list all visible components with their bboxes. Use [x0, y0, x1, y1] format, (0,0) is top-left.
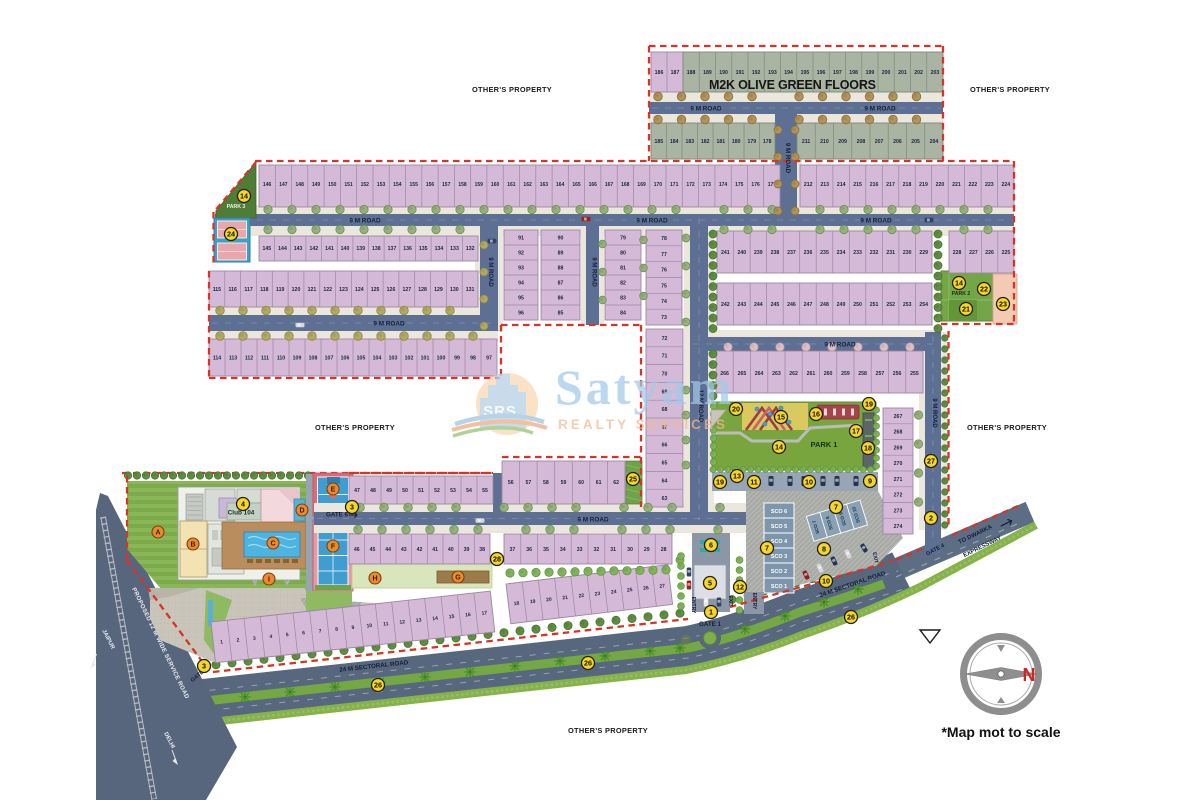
svg-text:47: 47 — [354, 488, 360, 494]
svg-text:28: 28 — [661, 547, 667, 553]
svg-text:206: 206 — [893, 139, 902, 145]
svg-text:40: 40 — [448, 547, 454, 553]
svg-text:OTHER'S PROPERTY: OTHER'S PROPERTY — [568, 726, 648, 735]
svg-text:205: 205 — [911, 139, 920, 145]
svg-text:154: 154 — [393, 182, 402, 188]
svg-text:28: 28 — [493, 555, 501, 564]
svg-text:243: 243 — [737, 302, 746, 308]
svg-text:170: 170 — [654, 182, 663, 188]
svg-text:211: 211 — [802, 139, 810, 145]
svg-text:237: 237 — [787, 250, 796, 256]
svg-text:26: 26 — [847, 613, 855, 622]
svg-text:254: 254 — [919, 302, 928, 308]
svg-text:166: 166 — [589, 182, 598, 188]
svg-text:265: 265 — [738, 371, 747, 377]
svg-text:238: 238 — [771, 250, 780, 256]
svg-text:122: 122 — [323, 287, 332, 293]
svg-text:256: 256 — [893, 371, 902, 377]
svg-text:106: 106 — [341, 356, 350, 362]
svg-text:131: 131 — [466, 287, 475, 293]
svg-text:165: 165 — [572, 182, 581, 188]
svg-text:14: 14 — [955, 279, 963, 288]
svg-text:10: 10 — [366, 623, 372, 630]
svg-text:38: 38 — [479, 547, 485, 553]
svg-text:219: 219 — [919, 182, 928, 188]
svg-text:247: 247 — [804, 302, 813, 308]
svg-text:63: 63 — [662, 496, 668, 502]
svg-text:90: 90 — [558, 236, 564, 242]
svg-text:198: 198 — [849, 70, 858, 76]
svg-text:9 M ROAD: 9 M ROAD — [577, 517, 609, 524]
svg-text:271: 271 — [894, 477, 903, 483]
svg-text:9 M ROAD: 9 M ROAD — [784, 143, 791, 174]
svg-text:192: 192 — [752, 70, 761, 76]
svg-text:10: 10 — [805, 478, 813, 487]
svg-text:173: 173 — [703, 182, 712, 188]
svg-text:C: C — [270, 541, 275, 548]
svg-text:109: 109 — [293, 356, 302, 362]
svg-text:201: 201 — [898, 70, 907, 76]
svg-text:11: 11 — [750, 478, 758, 487]
svg-text:32: 32 — [594, 547, 600, 553]
svg-text:112: 112 — [245, 356, 253, 362]
svg-text:114: 114 — [213, 356, 221, 362]
svg-text:51: 51 — [418, 488, 424, 494]
svg-text:SCO 6: SCO 6 — [771, 509, 787, 515]
svg-text:273: 273 — [894, 508, 903, 514]
svg-text:61: 61 — [596, 480, 602, 486]
svg-text:23: 23 — [594, 591, 600, 598]
svg-text:52: 52 — [434, 488, 440, 494]
svg-text:124: 124 — [355, 287, 364, 293]
svg-text:9 M ROAD: 9 M ROAD — [864, 106, 896, 113]
svg-text:19: 19 — [716, 478, 724, 487]
svg-text:D: D — [299, 508, 304, 515]
svg-text:9 M ROAD: 9 M ROAD — [931, 398, 937, 428]
svg-text:120: 120 — [292, 287, 301, 293]
svg-text:181: 181 — [716, 139, 725, 145]
svg-text:22: 22 — [578, 593, 584, 600]
svg-text:260: 260 — [824, 371, 833, 377]
svg-text:12: 12 — [736, 583, 744, 592]
svg-text:196: 196 — [817, 70, 826, 76]
svg-text:171: 171 — [670, 182, 679, 188]
svg-text:118: 118 — [260, 287, 268, 293]
svg-text:H: H — [372, 576, 377, 583]
svg-text:96: 96 — [518, 311, 524, 317]
svg-text:163: 163 — [540, 182, 549, 188]
svg-text:139: 139 — [356, 246, 365, 252]
svg-text:SCO 3: SCO 3 — [771, 554, 787, 560]
svg-text:18: 18 — [864, 444, 872, 453]
svg-text:168: 168 — [621, 182, 630, 188]
svg-text:24: 24 — [227, 230, 235, 239]
svg-text:213: 213 — [820, 182, 829, 188]
svg-text:ENTRY: ENTRY — [751, 593, 757, 610]
svg-text:140: 140 — [341, 246, 350, 252]
svg-text:147: 147 — [279, 182, 288, 188]
svg-text:3: 3 — [350, 503, 354, 512]
svg-text:75: 75 — [661, 283, 667, 289]
svg-text:144: 144 — [278, 246, 287, 252]
svg-text:100: 100 — [437, 356, 446, 362]
svg-text:156: 156 — [426, 182, 435, 188]
svg-text:8: 8 — [822, 545, 826, 554]
svg-text:9 M ROAD: 9 M ROAD — [824, 342, 856, 349]
svg-text:127: 127 — [402, 287, 411, 293]
svg-text:OTHER'S PROPERTY: OTHER'S PROPERTY — [970, 85, 1050, 94]
svg-text:50: 50 — [402, 488, 408, 494]
svg-text:21: 21 — [562, 595, 568, 602]
svg-text:87: 87 — [558, 281, 564, 287]
svg-text:REALTY SERVICES: REALTY SERVICES — [558, 417, 728, 432]
svg-text:157: 157 — [442, 182, 451, 188]
svg-text:98: 98 — [470, 356, 476, 362]
svg-text:234: 234 — [837, 250, 846, 256]
svg-text:236: 236 — [804, 250, 813, 256]
svg-text:143: 143 — [294, 246, 303, 252]
svg-text:OTHER'S PROPERTY: OTHER'S PROPERTY — [315, 423, 395, 432]
svg-text:158: 158 — [458, 182, 467, 188]
svg-text:197: 197 — [833, 70, 842, 76]
svg-text:220: 220 — [936, 182, 945, 188]
svg-text:207: 207 — [875, 139, 884, 145]
svg-text:N: N — [1023, 665, 1036, 685]
svg-text:7: 7 — [834, 503, 838, 512]
svg-text:153: 153 — [377, 182, 386, 188]
svg-text:55: 55 — [482, 488, 488, 494]
svg-text:248: 248 — [820, 302, 829, 308]
svg-text:125: 125 — [371, 287, 380, 293]
svg-text:208: 208 — [857, 139, 866, 145]
svg-text:9 M ROAD: 9 M ROAD — [860, 218, 892, 225]
svg-text:145: 145 — [262, 246, 271, 252]
svg-text:56: 56 — [508, 480, 514, 486]
svg-text:250: 250 — [853, 302, 862, 308]
svg-text:18: 18 — [513, 601, 519, 608]
svg-text:235: 235 — [820, 250, 829, 256]
svg-text:209: 209 — [838, 139, 847, 145]
svg-text:132: 132 — [466, 246, 475, 252]
svg-text:66: 66 — [662, 443, 668, 449]
svg-text:43: 43 — [401, 547, 407, 553]
svg-text:34: 34 — [560, 547, 566, 553]
svg-text:92: 92 — [518, 251, 524, 257]
svg-text:212: 212 — [804, 182, 813, 188]
svg-text:123: 123 — [339, 287, 348, 293]
svg-text:193: 193 — [768, 70, 777, 76]
svg-text:214: 214 — [837, 182, 846, 188]
svg-text:229: 229 — [919, 250, 928, 256]
svg-text:185: 185 — [654, 139, 663, 145]
svg-text:228: 228 — [953, 250, 962, 256]
svg-text:259: 259 — [841, 371, 850, 377]
svg-text:65: 65 — [662, 461, 668, 467]
svg-text:104: 104 — [373, 356, 382, 362]
svg-text:16: 16 — [812, 410, 820, 419]
svg-text:58: 58 — [543, 480, 549, 486]
svg-text:PARK 1: PARK 1 — [811, 440, 838, 449]
svg-text:95: 95 — [518, 296, 524, 302]
svg-text:26: 26 — [584, 659, 592, 668]
svg-text:274: 274 — [894, 524, 903, 530]
svg-text:*Map mot to scale: *Map mot to scale — [941, 724, 1060, 740]
svg-text:200: 200 — [882, 70, 891, 76]
svg-text:10: 10 — [822, 577, 830, 586]
svg-text:89: 89 — [558, 251, 564, 257]
svg-text:9 M ROAD: 9 M ROAD — [487, 257, 493, 287]
svg-text:7: 7 — [765, 544, 769, 553]
svg-text:199: 199 — [866, 70, 875, 76]
svg-text:44: 44 — [385, 547, 391, 553]
svg-text:13: 13 — [416, 617, 422, 624]
svg-text:252: 252 — [886, 302, 895, 308]
svg-text:172: 172 — [686, 182, 695, 188]
svg-text:14: 14 — [775, 443, 783, 452]
svg-text:169: 169 — [637, 182, 646, 188]
svg-text:99: 99 — [454, 356, 460, 362]
svg-text:224: 224 — [1001, 182, 1010, 188]
svg-text:13: 13 — [733, 472, 741, 481]
svg-text:20: 20 — [546, 597, 552, 604]
svg-text:249: 249 — [837, 302, 846, 308]
svg-text:2: 2 — [929, 514, 933, 523]
svg-text:183: 183 — [685, 139, 694, 145]
svg-text:182: 182 — [701, 139, 710, 145]
svg-text:OTHER'S PROPERTY: OTHER'S PROPERTY — [472, 85, 552, 94]
svg-text:11: 11 — [383, 621, 389, 628]
svg-text:102: 102 — [405, 356, 414, 362]
svg-text:138: 138 — [372, 246, 381, 252]
svg-text:105: 105 — [357, 356, 366, 362]
svg-text:111: 111 — [261, 356, 269, 362]
svg-text:17: 17 — [481, 610, 487, 617]
svg-text:29: 29 — [644, 547, 650, 553]
svg-text:241: 241 — [721, 250, 730, 256]
svg-text:77: 77 — [661, 252, 667, 258]
svg-text:270: 270 — [894, 461, 903, 467]
svg-text:16: 16 — [465, 612, 471, 619]
svg-text:22: 22 — [980, 285, 988, 294]
svg-text:129: 129 — [434, 287, 443, 293]
svg-text:244: 244 — [754, 302, 763, 308]
svg-text:119: 119 — [276, 287, 284, 293]
svg-text:103: 103 — [389, 356, 398, 362]
svg-text:Club 104: Club 104 — [228, 510, 255, 517]
svg-text:9 M ROAD: 9 M ROAD — [373, 321, 405, 328]
svg-text:245: 245 — [771, 302, 780, 308]
svg-text:184: 184 — [670, 139, 679, 145]
svg-text:3: 3 — [202, 662, 206, 671]
svg-text:110: 110 — [277, 356, 285, 362]
svg-text:101: 101 — [421, 356, 430, 362]
svg-text:SCO 2: SCO 2 — [771, 569, 787, 575]
svg-text:26: 26 — [374, 681, 382, 690]
svg-text:187: 187 — [671, 70, 680, 76]
svg-text:218: 218 — [903, 182, 912, 188]
svg-text:OTHER'S PROPERTY: OTHER'S PROPERTY — [967, 423, 1047, 432]
svg-text:84: 84 — [620, 311, 626, 317]
svg-text:161: 161 — [507, 182, 516, 188]
svg-text:4: 4 — [241, 500, 245, 509]
svg-text:62: 62 — [613, 480, 619, 486]
svg-text:Satyam: Satyam — [555, 359, 734, 415]
svg-text:272: 272 — [894, 493, 903, 499]
svg-text:54: 54 — [466, 488, 472, 494]
svg-text:227: 227 — [969, 250, 978, 256]
svg-text:221: 221 — [952, 182, 961, 188]
svg-text:174: 174 — [719, 182, 728, 188]
svg-text:GATE 6: GATE 6 — [326, 512, 348, 519]
svg-text:217: 217 — [886, 182, 895, 188]
svg-text:194: 194 — [784, 70, 793, 76]
svg-text:189: 189 — [703, 70, 712, 76]
svg-text:80: 80 — [620, 251, 626, 257]
svg-text:155: 155 — [410, 182, 419, 188]
svg-text:97: 97 — [486, 356, 492, 362]
svg-text:159: 159 — [475, 182, 484, 188]
svg-text:223: 223 — [985, 182, 994, 188]
svg-text:190: 190 — [719, 70, 728, 76]
svg-text:53: 53 — [450, 488, 456, 494]
svg-text:222: 222 — [968, 182, 977, 188]
svg-text:9 M ROAD: 9 M ROAD — [636, 218, 668, 225]
svg-text:78: 78 — [661, 236, 667, 242]
svg-text:19: 19 — [530, 599, 536, 606]
svg-text:37: 37 — [510, 547, 516, 553]
svg-text:264: 264 — [755, 371, 764, 377]
svg-text:25: 25 — [629, 475, 637, 484]
svg-text:SCO 1: SCO 1 — [771, 584, 787, 590]
svg-text:36: 36 — [526, 547, 532, 553]
svg-text:F: F — [331, 544, 336, 551]
svg-text:117: 117 — [244, 287, 252, 293]
svg-text:B: B — [190, 542, 195, 549]
svg-text:59: 59 — [561, 480, 567, 486]
svg-text:126: 126 — [387, 287, 396, 293]
svg-text:108: 108 — [309, 356, 318, 362]
svg-text:74: 74 — [661, 299, 667, 305]
svg-text:164: 164 — [556, 182, 565, 188]
svg-text:178: 178 — [763, 139, 772, 145]
svg-text:116: 116 — [229, 287, 237, 293]
svg-text:113: 113 — [229, 356, 237, 362]
svg-text:202: 202 — [914, 70, 923, 76]
svg-text:81: 81 — [620, 266, 626, 272]
svg-text:107: 107 — [325, 356, 334, 362]
svg-text:180: 180 — [732, 139, 741, 145]
svg-text:160: 160 — [491, 182, 500, 188]
svg-text:188: 188 — [687, 70, 696, 76]
svg-text:253: 253 — [903, 302, 912, 308]
svg-text:94: 94 — [518, 281, 524, 287]
svg-text:268: 268 — [894, 430, 903, 436]
svg-text:EXIT: EXIT — [727, 595, 733, 606]
svg-text:48: 48 — [370, 488, 376, 494]
svg-text:251: 251 — [870, 302, 879, 308]
svg-text:82: 82 — [620, 281, 626, 287]
svg-text:SCO 5: SCO 5 — [771, 524, 787, 530]
svg-text:162: 162 — [523, 182, 532, 188]
svg-text:91: 91 — [518, 236, 524, 242]
svg-text:225: 225 — [1002, 250, 1011, 256]
svg-text:261: 261 — [807, 371, 816, 377]
svg-text:83: 83 — [620, 296, 626, 302]
svg-text:186: 186 — [655, 70, 664, 76]
svg-text:115: 115 — [213, 287, 221, 293]
svg-text:21: 21 — [962, 305, 970, 314]
svg-text:167: 167 — [605, 182, 614, 188]
svg-text:E: E — [331, 487, 336, 494]
svg-text:226: 226 — [985, 250, 994, 256]
svg-text:24: 24 — [611, 589, 617, 596]
svg-text:135: 135 — [419, 246, 428, 252]
svg-text:133: 133 — [450, 246, 459, 252]
svg-text:141: 141 — [325, 246, 334, 252]
svg-text:263: 263 — [772, 371, 781, 377]
svg-text:6: 6 — [709, 541, 713, 550]
svg-text:146: 146 — [263, 182, 272, 188]
svg-text:76: 76 — [661, 268, 667, 274]
svg-text:232: 232 — [870, 250, 879, 256]
svg-text:64: 64 — [662, 478, 668, 484]
svg-text:9 M ROAD: 9 M ROAD — [690, 106, 722, 113]
svg-text:79: 79 — [620, 236, 626, 242]
svg-text:14: 14 — [240, 192, 248, 201]
svg-text:SCO 4: SCO 4 — [771, 539, 787, 545]
svg-text:176: 176 — [751, 182, 760, 188]
svg-text:15: 15 — [777, 413, 785, 422]
svg-text:G: G — [455, 575, 461, 582]
svg-text:85: 85 — [558, 311, 564, 317]
svg-text:134: 134 — [435, 246, 444, 252]
svg-text:31: 31 — [610, 547, 616, 553]
svg-text:23: 23 — [999, 300, 1007, 309]
svg-text:240: 240 — [737, 250, 746, 256]
svg-text:130: 130 — [450, 287, 459, 293]
svg-text:57: 57 — [526, 480, 532, 486]
svg-text:41: 41 — [432, 547, 438, 553]
svg-text:46: 46 — [354, 547, 360, 553]
svg-text:60: 60 — [578, 480, 584, 486]
svg-text:136: 136 — [403, 246, 412, 252]
svg-text:45: 45 — [370, 547, 376, 553]
svg-text:33: 33 — [577, 547, 583, 553]
svg-text:14: 14 — [432, 616, 438, 623]
svg-text:9: 9 — [868, 477, 872, 486]
svg-text:9 M ROAD: 9 M ROAD — [591, 257, 597, 287]
svg-text:203: 203 — [931, 70, 940, 76]
svg-text:ENTRY: ENTRY — [690, 597, 696, 614]
svg-text:215: 215 — [853, 182, 862, 188]
svg-text:25: 25 — [627, 587, 633, 594]
svg-text:175: 175 — [735, 182, 744, 188]
svg-text:142: 142 — [309, 246, 318, 252]
svg-text:150: 150 — [328, 182, 337, 188]
svg-text:246: 246 — [787, 302, 796, 308]
svg-text:204: 204 — [930, 139, 939, 145]
svg-text:19: 19 — [865, 400, 873, 409]
svg-text:216: 216 — [870, 182, 879, 188]
svg-text:I: I — [268, 577, 270, 584]
svg-text:267: 267 — [894, 414, 903, 420]
svg-text:35: 35 — [543, 547, 549, 553]
svg-text:5: 5 — [708, 579, 712, 588]
svg-text:137: 137 — [388, 246, 397, 252]
svg-text:PARK 2: PARK 2 — [952, 291, 971, 297]
svg-text:233: 233 — [853, 250, 862, 256]
svg-text:12: 12 — [399, 619, 405, 626]
